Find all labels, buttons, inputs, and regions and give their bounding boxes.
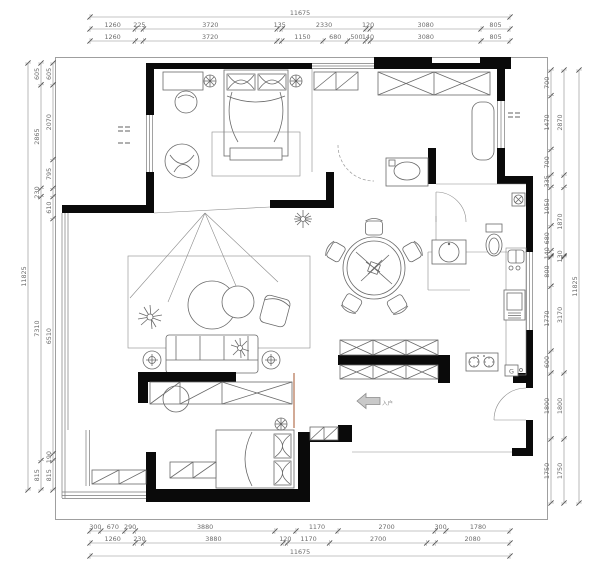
svg-text:600: 600: [543, 356, 551, 368]
svg-text:135: 135: [274, 21, 286, 29]
ceiling-fan-icon: [275, 418, 287, 430]
low-cabinet: [170, 462, 216, 478]
single-bed: [216, 430, 294, 488]
svg-text:1150: 1150: [294, 33, 310, 41]
bathtub: [472, 102, 494, 160]
svg-text:805: 805: [489, 21, 501, 29]
entry-arrow-label: 入户: [382, 399, 393, 407]
armchair: [259, 294, 291, 328]
master-bedroom-furniture: [130, 70, 302, 302]
svg-text:815: 815: [33, 469, 41, 481]
svg-text:1170: 1170: [300, 535, 316, 543]
bath-door-arc: [436, 192, 466, 222]
svg-text:2700: 2700: [370, 535, 386, 543]
svg-text:335: 335: [543, 175, 551, 187]
svg-text:11675: 11675: [290, 548, 310, 556]
entry-door-arc: [494, 388, 526, 420]
kitchen-sink: [508, 250, 524, 270]
svg-text:130: 130: [556, 250, 564, 262]
svg-text:3170: 3170: [556, 307, 564, 323]
living-room-furniture: [128, 256, 310, 373]
svg-text:3080: 3080: [418, 33, 434, 41]
dining-table: [343, 237, 405, 299]
floor-plan-drawing: G: [0, 0, 600, 580]
refrigerator: [504, 290, 525, 320]
svg-text:230: 230: [133, 535, 145, 543]
gas-meter-label: G: [509, 368, 514, 376]
svg-text:11675: 11675: [290, 9, 310, 17]
window-tag: [508, 112, 520, 118]
svg-text:1050: 1050: [543, 198, 551, 214]
svg-text:800: 800: [543, 265, 551, 277]
desk-stool: [175, 91, 197, 113]
dining-chair: [340, 293, 363, 316]
coffee-table-small: [222, 286, 254, 318]
svg-text:7310: 7310: [33, 320, 41, 336]
svg-text:2070: 2070: [45, 114, 53, 130]
svg-text:680: 680: [543, 232, 551, 244]
svg-text:3880: 3880: [205, 535, 221, 543]
svg-text:300: 300: [89, 523, 101, 531]
window-tag: [118, 126, 130, 144]
entry-arrow-icon: [357, 394, 380, 409]
plant-icon: [294, 210, 312, 228]
svg-text:1870: 1870: [556, 213, 564, 229]
svg-text:6510: 6510: [45, 328, 53, 344]
svg-text:11825: 11825: [20, 266, 28, 286]
swivel-chair: [165, 144, 199, 178]
double-bed: [224, 70, 288, 156]
svg-text:230: 230: [33, 186, 41, 198]
svg-text:1260: 1260: [105, 21, 121, 29]
svg-text:190: 190: [45, 451, 53, 463]
svg-text:1260: 1260: [104, 33, 120, 41]
svg-text:2330: 2330: [316, 21, 332, 29]
svg-text:1170: 1170: [309, 523, 325, 531]
wardrobe: [150, 382, 292, 412]
svg-text:120: 120: [362, 21, 374, 29]
hall-door-arc: [338, 145, 374, 181]
svg-text:140: 140: [362, 33, 374, 41]
svg-text:1470: 1470: [543, 114, 551, 130]
dining-chair: [402, 240, 425, 263]
svg-text:2700: 2700: [378, 523, 394, 531]
svg-text:610: 610: [45, 202, 53, 214]
svg-text:680: 680: [329, 33, 341, 41]
wardrobe: [378, 72, 490, 95]
bed-bench: [230, 148, 282, 160]
svg-text:300: 300: [434, 523, 446, 531]
dining-furniture: [324, 219, 425, 317]
svg-text:1260: 1260: [105, 535, 121, 543]
floor-plan-page: G: [0, 0, 600, 580]
svg-text:700: 700: [543, 156, 551, 168]
svg-text:500: 500: [350, 33, 362, 41]
svg-text:670: 670: [107, 523, 119, 531]
svg-text:3720: 3720: [202, 21, 218, 29]
exhaust-fan-icon: [512, 193, 525, 206]
gas-stove: [466, 353, 498, 371]
svg-text:11825: 11825: [571, 276, 579, 296]
svg-text:3880: 3880: [197, 523, 213, 531]
bathroom-sink: [432, 240, 466, 264]
wash-basin: [386, 158, 428, 186]
desk: [163, 72, 203, 90]
svg-text:700: 700: [543, 77, 551, 89]
svg-text:815: 815: [45, 469, 53, 481]
svg-text:120: 120: [279, 535, 291, 543]
svg-text:1780: 1780: [470, 523, 486, 531]
entry-marker: 入户: [357, 394, 393, 409]
svg-text:805: 805: [489, 33, 501, 41]
svg-text:1750: 1750: [543, 463, 551, 479]
svg-text:605: 605: [45, 68, 53, 80]
svg-text:2870: 2870: [556, 114, 564, 130]
svg-text:795: 795: [45, 168, 53, 180]
svg-text:225: 225: [133, 21, 145, 29]
svg-text:1750: 1750: [556, 463, 564, 479]
speaker-icon: [143, 351, 161, 369]
walls: [62, 57, 533, 502]
ceiling-fan-icon: [290, 75, 302, 87]
svg-text:1770: 1770: [543, 310, 551, 326]
svg-text:3720: 3720: [202, 33, 218, 41]
toilet: [486, 224, 502, 256]
svg-text:1800: 1800: [543, 398, 551, 414]
svg-text:1800: 1800: [556, 398, 564, 414]
ceiling-fan-icon: [204, 75, 216, 87]
closet: [310, 427, 338, 440]
dining-chair: [386, 294, 409, 317]
svg-text:2865: 2865: [33, 128, 41, 144]
balcony: [92, 470, 146, 484]
dining-chair: [366, 219, 383, 236]
speaker-icon: [262, 351, 280, 369]
svg-text:3080: 3080: [418, 21, 434, 29]
svg-text:290: 290: [124, 523, 136, 531]
plant-icon: [138, 305, 162, 329]
svg-text:605: 605: [33, 68, 41, 80]
svg-text:2080: 2080: [464, 535, 480, 543]
dining-chair: [324, 240, 347, 263]
